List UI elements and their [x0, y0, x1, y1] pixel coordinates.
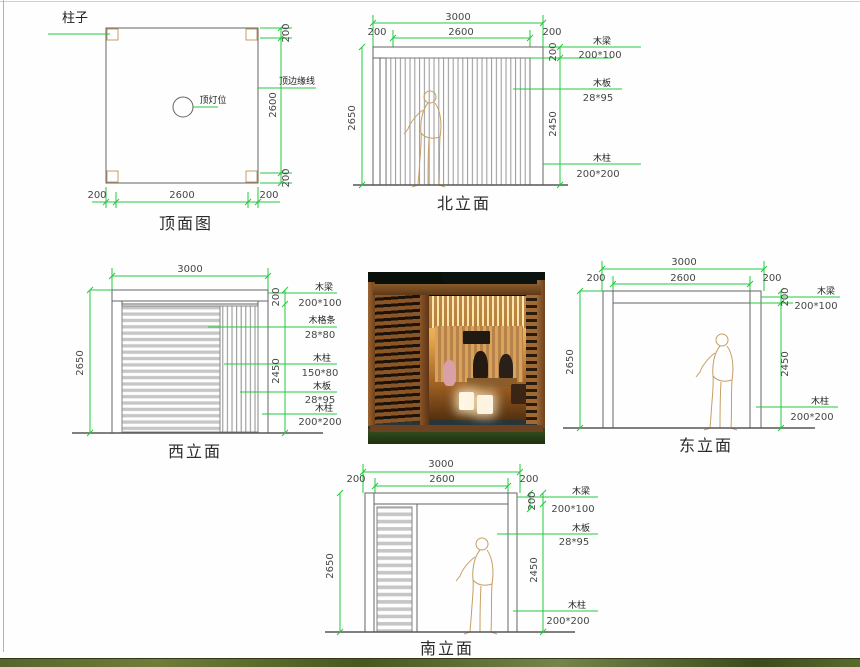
- callout-part: 木柱: [315, 402, 333, 414]
- callout-size: 200*200: [576, 169, 619, 180]
- north-elevation-drawing: 3000 200 2600 200 2650 200 2450 木梁 200*1…: [347, 12, 641, 213]
- callout-part: 木格条: [308, 314, 335, 326]
- cad-linework: 柱子 顶灯位 顶边缘线 200 2600 200 200 2600 200 顶面…: [0, 0, 860, 667]
- dim-label: 2600: [448, 27, 473, 38]
- south-elevation-title: 南立面: [420, 639, 474, 658]
- dim-label: 2600: [169, 190, 194, 201]
- dim-label: 2450: [780, 351, 791, 376]
- ceiling-light-label: 顶灯位: [199, 94, 226, 106]
- drawing-sheet: 柱子 顶灯位 顶边缘线 200 2600 200 200 2600 200 顶面…: [0, 0, 860, 667]
- grass-photo-strip: [0, 658, 860, 667]
- callout-size: 200*200: [298, 417, 341, 428]
- callout-size: 200*100: [794, 301, 837, 312]
- callout-size: 200*200: [546, 616, 589, 627]
- callout-part: 木梁: [572, 485, 590, 497]
- dim-label: 2650: [347, 105, 358, 130]
- east-elevation-title: 东立面: [679, 436, 733, 455]
- person-sketch: [456, 538, 497, 634]
- callout-part: 木柱: [593, 152, 611, 164]
- dim-label: 200: [527, 491, 538, 510]
- callout-size: 200*100: [551, 504, 594, 515]
- callout-part: 木梁: [593, 35, 611, 47]
- callout-size: 200*200: [790, 412, 833, 423]
- plan-view-drawing: 柱子 顶灯位 顶边缘线 200 2600 200 200 2600 200 顶面…: [48, 11, 316, 233]
- callout-size: 150*80: [302, 368, 339, 379]
- dim-label: 200: [271, 287, 282, 306]
- callout-size: 28*95: [583, 93, 613, 104]
- dim-label: 200: [519, 474, 538, 485]
- callout-part: 木柱: [313, 352, 331, 364]
- dim-label: 2450: [529, 557, 540, 582]
- vertical-slat-panel: [386, 58, 530, 185]
- callout-part: 木板: [572, 522, 590, 534]
- dim-label: 2650: [325, 553, 336, 578]
- dim-label: 200: [346, 474, 365, 485]
- plan-view-title: 顶面图: [159, 214, 213, 233]
- callout-part: 木梁: [315, 281, 333, 293]
- dim-label: 200: [281, 168, 292, 187]
- north-elevation-title: 北立面: [437, 194, 491, 213]
- dim-label: 2650: [75, 350, 86, 375]
- callout-size: 28*80: [305, 330, 335, 341]
- dim-label: 200: [548, 42, 559, 61]
- callout-size: 200*100: [578, 50, 621, 61]
- callout-part: 木柱: [811, 395, 829, 407]
- dim-label: 200: [259, 190, 278, 201]
- west-elevation-title: 西立面: [168, 442, 222, 461]
- horizontal-slat-panel: [122, 306, 220, 432]
- dim-label: 200: [586, 273, 605, 284]
- dim-label: 2650: [565, 349, 576, 374]
- callout-part: 木梁: [817, 285, 835, 297]
- dim-label: 2600: [429, 474, 454, 485]
- east-elevation-drawing: 3000 200 2600 200 2650 200 2450 木梁 200*1…: [563, 257, 840, 455]
- dim-label: 200: [367, 27, 386, 38]
- column-label: 柱子: [62, 11, 88, 26]
- dim-label: 2600: [670, 273, 695, 284]
- dim-label: 3000: [428, 459, 453, 470]
- dim-label: 2450: [548, 111, 559, 136]
- callout-size: 28*95: [559, 537, 589, 548]
- dim-label: 200: [542, 27, 561, 38]
- dim-label: 3000: [671, 257, 696, 268]
- dim-label: 200: [281, 23, 292, 42]
- top-edge-label: 顶边缘线: [279, 75, 315, 87]
- callout-part: 木板: [313, 380, 331, 392]
- callout-part: 木柱: [568, 599, 586, 611]
- south-elevation-drawing: 3000 200 2600 200 2650 200 2450 木梁 200*1…: [325, 459, 598, 658]
- dim-label: 200: [780, 287, 791, 306]
- vertical-slat-strip: [220, 306, 258, 432]
- corner-columns: [107, 29, 257, 182]
- west-elevation-drawing: 3000 2650 200 2450 木梁 200*100 木格条 28*80 …: [72, 264, 342, 461]
- dim-label: 200: [762, 273, 781, 284]
- dim-label: 3000: [177, 264, 202, 275]
- callout-size: 200*100: [298, 298, 341, 309]
- dim-label: 3000: [445, 12, 470, 23]
- dim-label: 2450: [271, 358, 282, 383]
- callout-part: 木板: [593, 77, 611, 89]
- ceiling-light-circle: [173, 97, 193, 117]
- dim-label: 2600: [268, 92, 279, 117]
- horizontal-slat-panel: [377, 507, 412, 632]
- dim-label: 200: [87, 190, 106, 201]
- person-sketch: [696, 334, 737, 430]
